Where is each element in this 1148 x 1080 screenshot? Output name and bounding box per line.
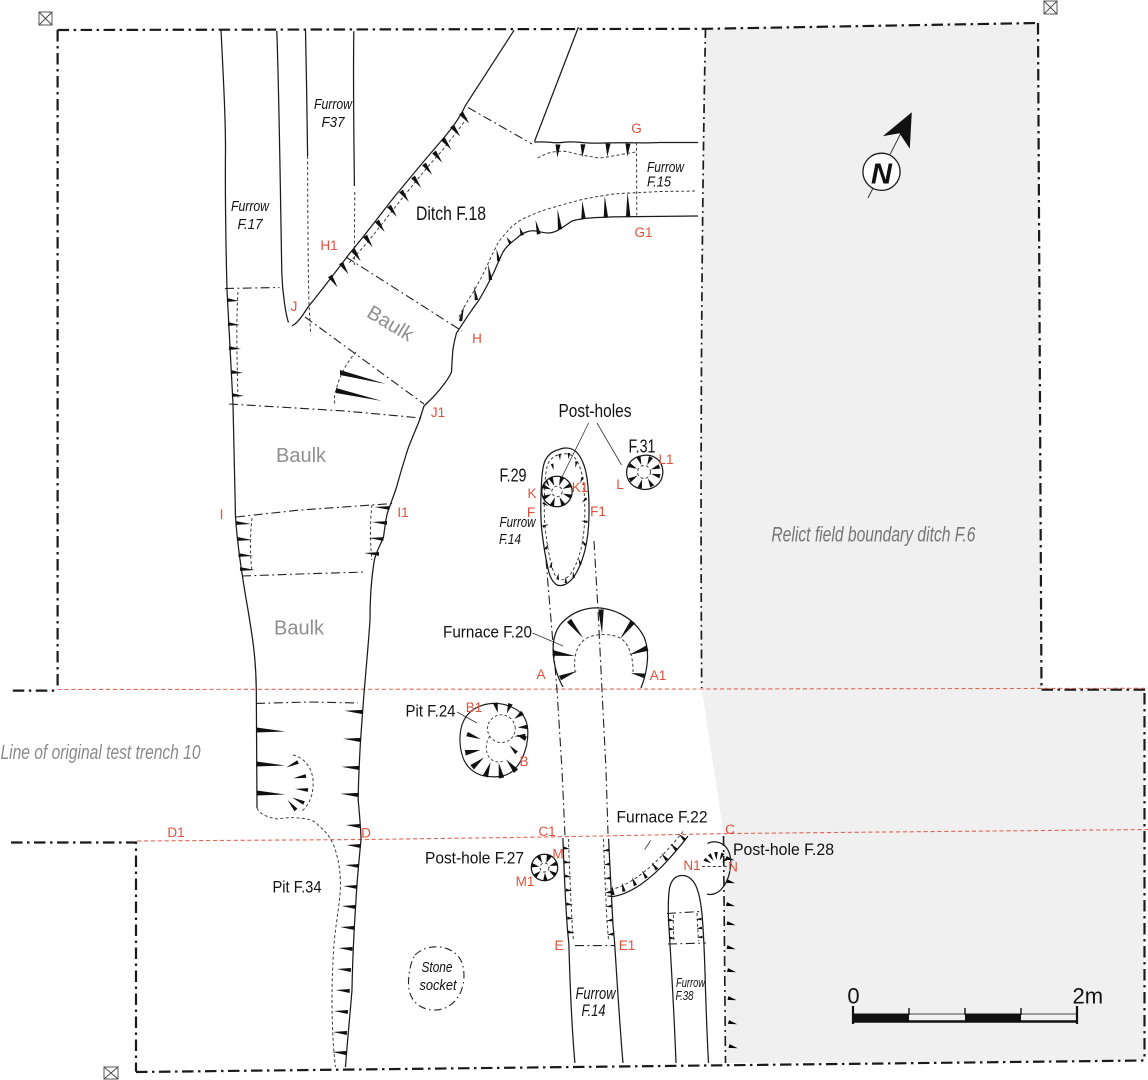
svg-text:B: B (519, 754, 528, 769)
svg-text:Baulk: Baulk (276, 445, 327, 467)
svg-text:L: L (616, 477, 624, 492)
svg-text:M: M (552, 847, 563, 862)
svg-text:B1: B1 (466, 700, 483, 715)
svg-text:2m: 2m (1073, 984, 1104, 1009)
svg-text:G: G (631, 121, 642, 136)
svg-text:Furrow: Furrow (576, 985, 617, 1003)
svg-text:F.17: F.17 (238, 216, 264, 233)
svg-text:F.38: F.38 (676, 988, 695, 1003)
svg-text:D: D (361, 826, 371, 841)
svg-text:I1: I1 (397, 505, 408, 520)
svg-text:J1: J1 (431, 405, 445, 420)
svg-text:Furrow: Furrow (314, 96, 353, 113)
svg-text:F1: F1 (590, 504, 606, 519)
svg-text:N: N (728, 860, 738, 875)
svg-text:Relict field boundary ditch F.: Relict field boundary ditch F.6 (771, 523, 975, 546)
svg-text:F.15: F.15 (647, 175, 672, 191)
svg-text:D1: D1 (167, 825, 184, 840)
svg-text:A1: A1 (650, 668, 667, 683)
svg-text:Post-holes: Post-holes (559, 401, 632, 421)
svg-text:Stone: Stone (422, 959, 453, 976)
svg-text:F.31: F.31 (629, 437, 656, 457)
svg-text:J: J (291, 299, 298, 314)
svg-text:Pit F.34: Pit F.34 (273, 878, 322, 897)
svg-text:Ditch F.18: Ditch F.18 (416, 204, 486, 225)
svg-text:E: E (554, 938, 563, 953)
svg-text:A: A (536, 667, 545, 682)
svg-text:M1: M1 (516, 874, 535, 889)
svg-text:F.29: F.29 (500, 466, 527, 486)
svg-text:Post-hole F.27: Post-hole F.27 (425, 849, 524, 868)
svg-text:N: N (871, 159, 893, 191)
svg-text:0: 0 (847, 984, 859, 1009)
svg-text:L1: L1 (658, 452, 673, 467)
svg-text:H: H (472, 331, 482, 346)
svg-text:F.14: F.14 (582, 1002, 606, 1020)
svg-text:K1: K1 (572, 480, 589, 495)
svg-text:Pit F.24: Pit F.24 (406, 702, 456, 721)
svg-text:Post-hole F.28: Post-hole F.28 (733, 840, 834, 859)
svg-text:Line of original test trench 1: Line of original test trench 10 (1, 742, 201, 764)
svg-text:K: K (527, 486, 536, 501)
svg-text:Furrow: Furrow (231, 198, 270, 215)
svg-text:F: F (527, 505, 535, 520)
svg-text:Baulk: Baulk (274, 618, 325, 640)
svg-text:F37: F37 (322, 114, 346, 131)
svg-text:C1: C1 (538, 824, 555, 839)
svg-text:N1: N1 (683, 858, 700, 873)
svg-text:H1: H1 (320, 238, 337, 253)
svg-text:C: C (725, 822, 735, 837)
svg-text:socket: socket (420, 977, 458, 994)
svg-text:I: I (220, 507, 224, 522)
svg-text:Furnace F.20: Furnace F.20 (443, 623, 532, 642)
svg-text:F.14: F.14 (499, 532, 521, 548)
svg-text:G1: G1 (634, 225, 652, 240)
svg-text:Furnace F.22: Furnace F.22 (617, 808, 708, 827)
svg-text:E1: E1 (619, 938, 636, 953)
